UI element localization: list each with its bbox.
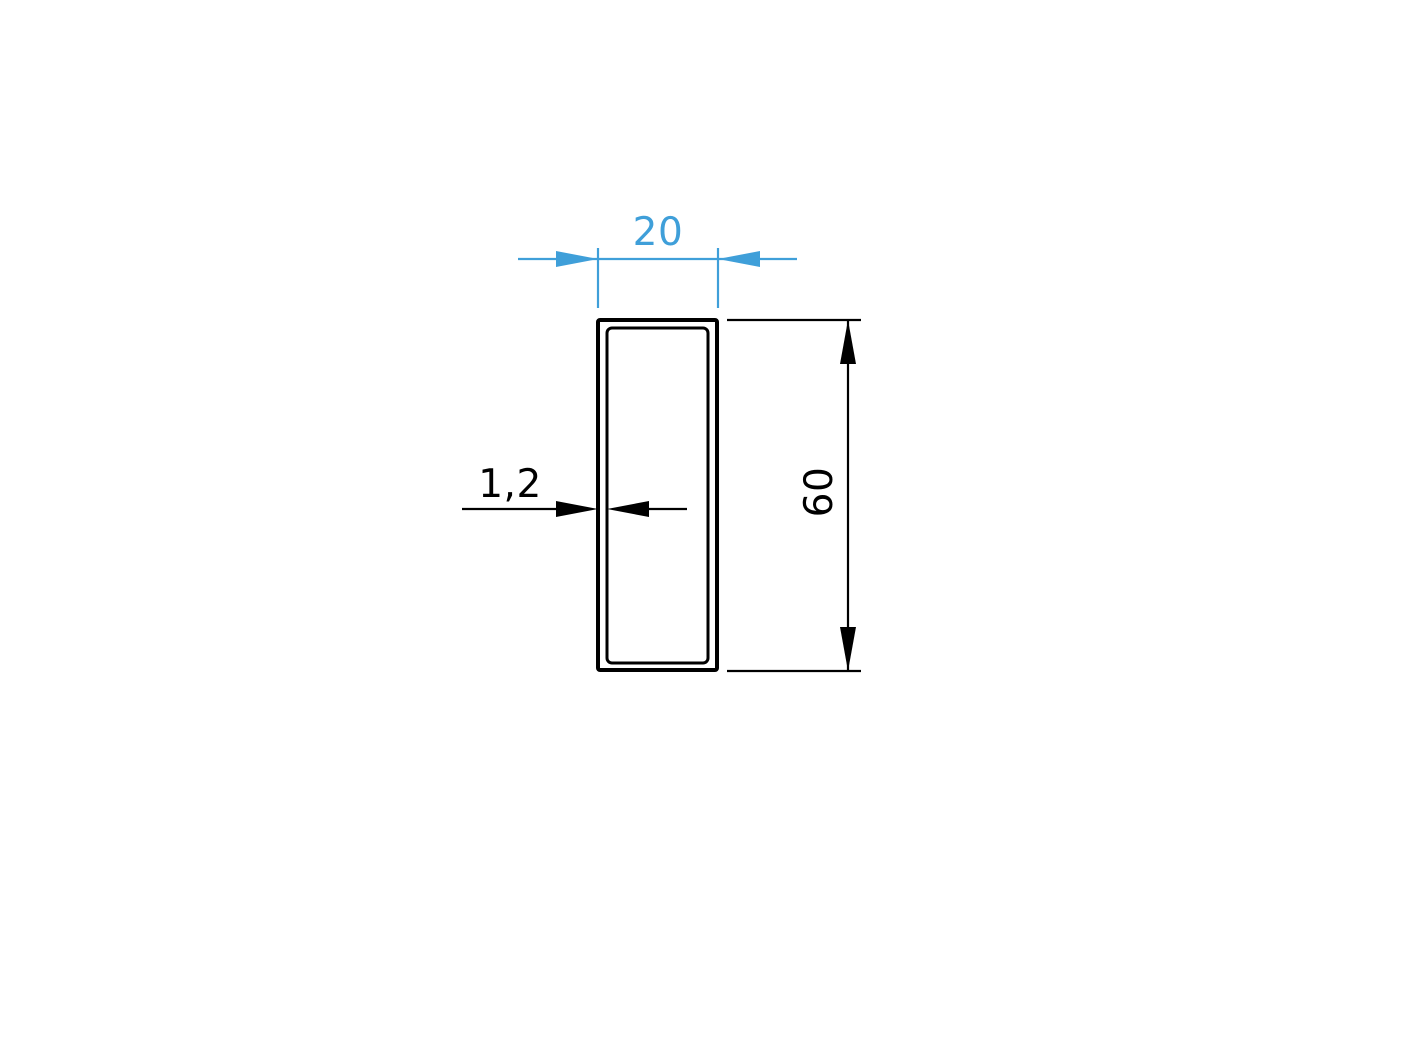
thickness-arrow-right	[607, 501, 649, 517]
profile-outer-contour	[598, 320, 717, 670]
technical-drawing: 20 60 1,2	[0, 0, 1417, 1062]
width-arrow-right	[718, 251, 760, 267]
thickness-dimension-label: 1,2	[478, 462, 542, 507]
height-arrow-up	[840, 320, 856, 364]
drawing-canvas: 20 60 1,2	[0, 0, 1417, 1062]
height-dimension: 60	[727, 320, 861, 671]
thickness-dimension: 1,2	[462, 462, 687, 517]
tube-profile	[598, 320, 717, 670]
profile-inner-contour	[607, 328, 708, 663]
height-arrow-down	[840, 627, 856, 671]
width-dimension-label: 20	[633, 210, 684, 255]
height-dimension-label: 60	[797, 467, 842, 518]
width-dimension: 20	[518, 210, 797, 308]
width-arrow-left	[556, 251, 598, 267]
thickness-arrow-left	[556, 501, 598, 517]
